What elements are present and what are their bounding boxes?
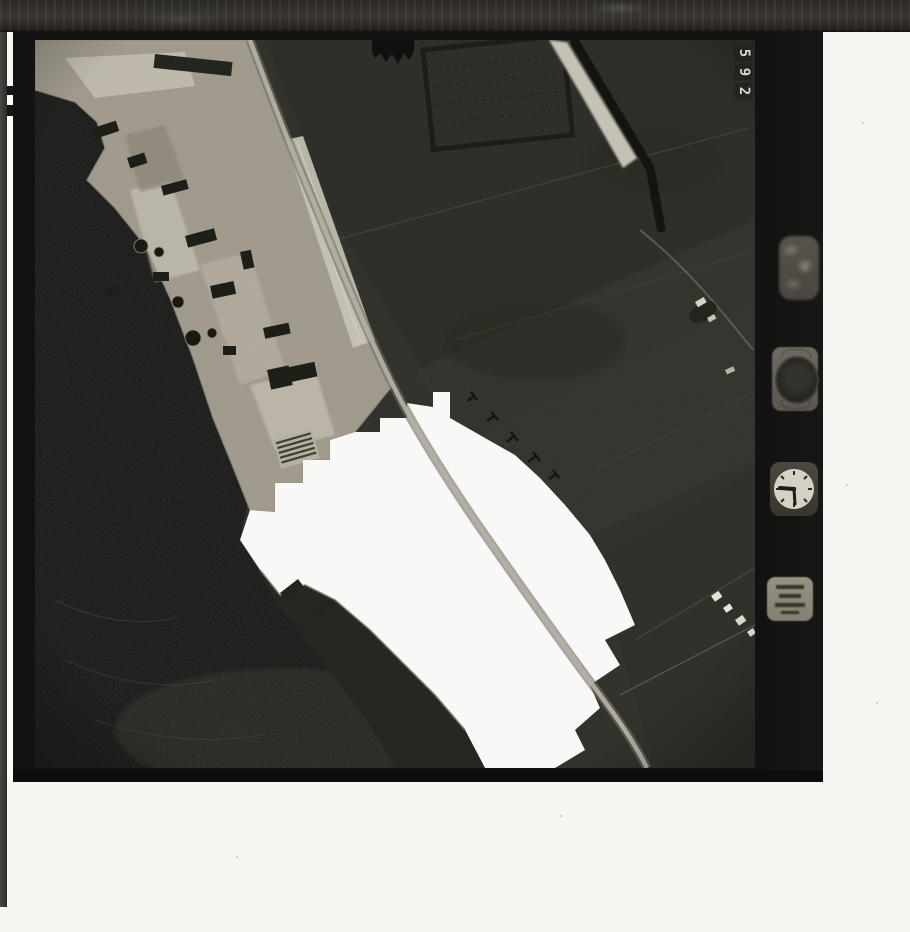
dust-speck — [846, 484, 848, 486]
level-bubble-instrument — [779, 236, 819, 300]
frame-number: 5 9 2 — [735, 44, 753, 101]
frame-number-digit: 2 — [734, 83, 752, 99]
dust-speck — [560, 815, 562, 817]
altimeter-dial — [775, 356, 819, 404]
film-scan-canvas: 5 9 2 — [0, 0, 910, 932]
edge-mark — [7, 105, 13, 116]
data-plate — [767, 577, 813, 621]
film-sheet: 5 9 2 — [13, 28, 823, 782]
aerial-photo — [35, 40, 755, 768]
clock-instrument — [770, 462, 818, 516]
altimeter-scale-arc — [781, 400, 811, 409]
frame-number-digit: 9 — [734, 64, 752, 80]
film-leader-band — [0, 0, 910, 32]
clock-face — [770, 462, 818, 516]
dust-speck — [876, 702, 878, 704]
frame-number-digit: 5 — [734, 45, 752, 61]
altimeter-instrument — [772, 347, 818, 411]
edge-mark — [7, 86, 13, 95]
film-edge-gap — [7, 86, 13, 782]
film-holder-strip — [0, 0, 7, 907]
dust-speck — [236, 856, 238, 858]
dust-speck — [862, 122, 864, 124]
